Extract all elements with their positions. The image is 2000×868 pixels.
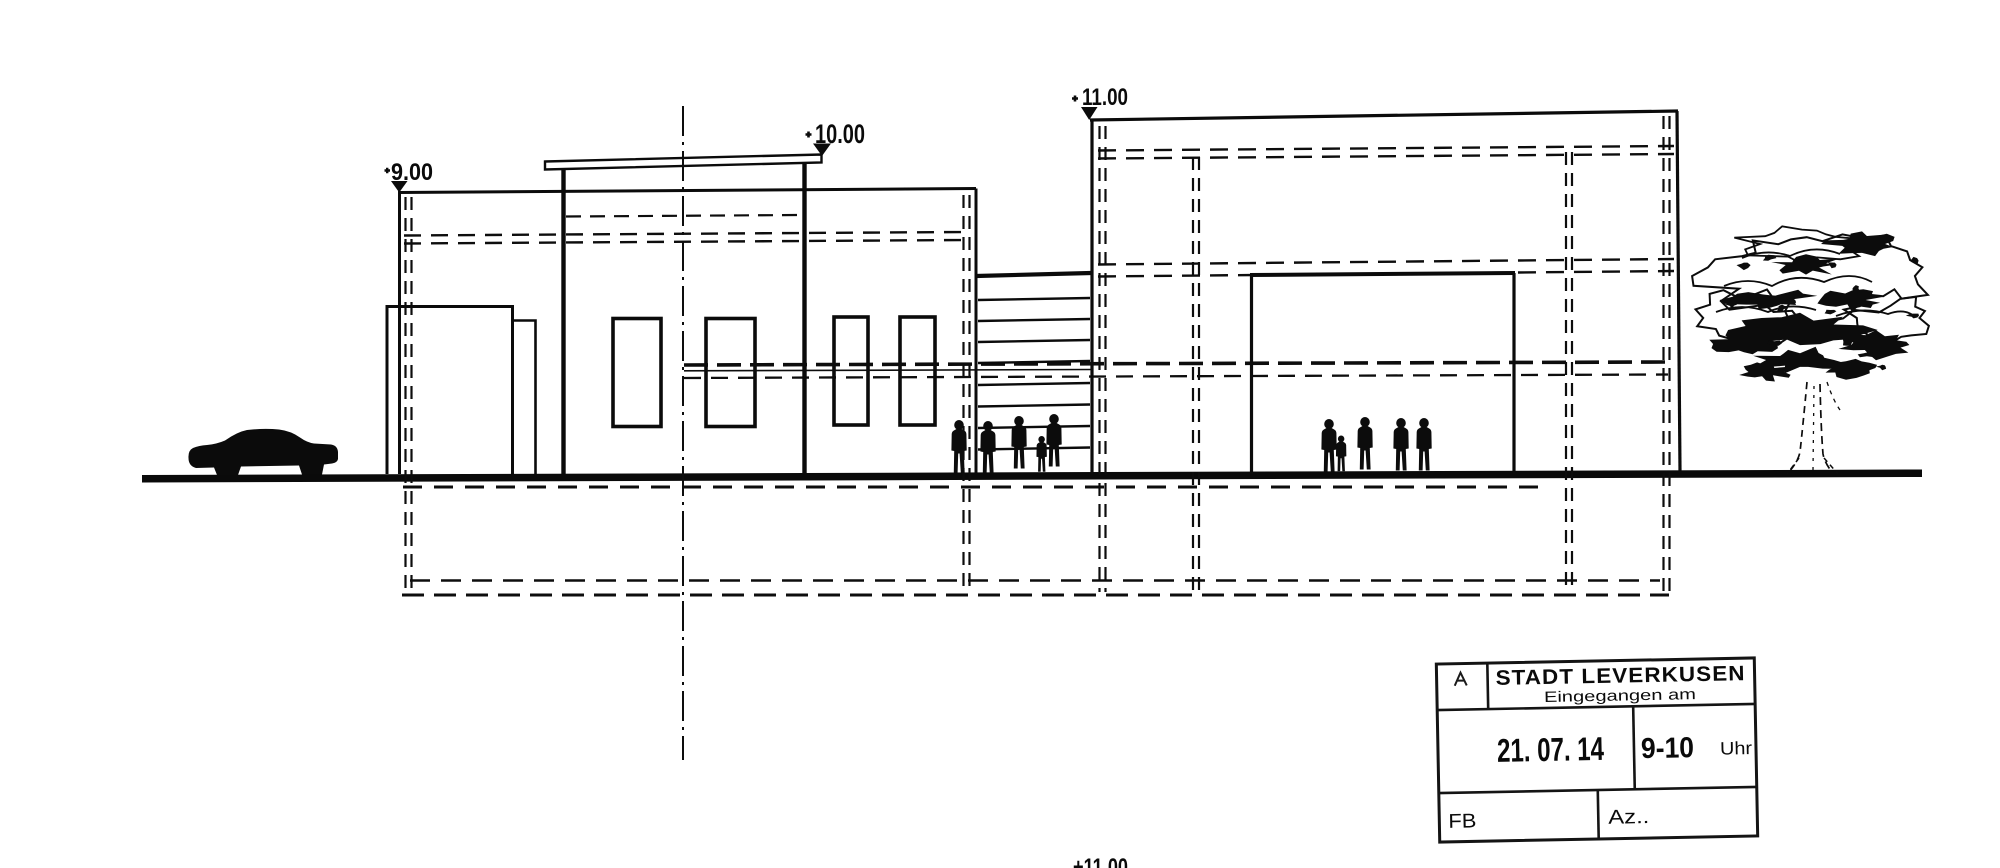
svg-text:Eingegangen am: Eingegangen am [1544,686,1696,706]
svg-text:FB: FB [1448,810,1476,833]
svg-text:11.00: 11.00 [1082,84,1128,111]
svg-text:Uhr: Uhr [1720,738,1752,759]
svg-text:21. 07. 14: 21. 07. 14 [1497,730,1605,769]
svg-text:Az..: Az.. [1608,806,1649,829]
svg-text:STADT LEVERKUSEN: STADT LEVERKUSEN [1495,662,1745,690]
svg-text:+11.00: +11.00 [1073,854,1128,868]
svg-text:9-10: 9-10 [1641,732,1695,765]
